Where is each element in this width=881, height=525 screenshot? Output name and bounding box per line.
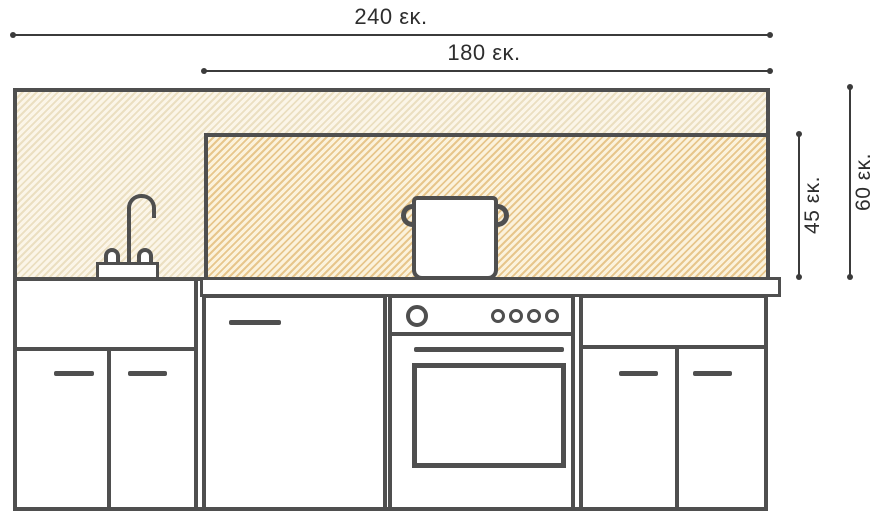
- dim-endpoint-icon: [767, 68, 773, 74]
- dim-label-inner-height: 45 εκ.: [800, 160, 826, 250]
- dim-endpoint-icon: [847, 84, 853, 90]
- door-handle-icon: [229, 320, 281, 325]
- cabinet-divider: [583, 345, 764, 349]
- door-handle-icon: [693, 371, 732, 376]
- kitchen-dimension-diagram: 240 εκ. 180 εκ. 45 εκ. 60 εκ.: [0, 0, 881, 525]
- door-handle-icon: [54, 371, 94, 376]
- cabinet-door-divider: [675, 345, 679, 507]
- faucet-handle-icon: [137, 248, 153, 263]
- dim-label-total-height: 60 εκ.: [851, 137, 877, 227]
- oven-knob-icon: [509, 309, 523, 323]
- dim-endpoint-icon: [847, 274, 853, 280]
- floor-baseline: [13, 507, 768, 511]
- faucet-spout-icon: [127, 194, 156, 218]
- door-handle-icon: [619, 371, 658, 376]
- dim-endpoint-icon: [796, 131, 802, 137]
- door-handle-icon: [128, 371, 167, 376]
- dim-label-inner-width: 180 εκ.: [404, 40, 564, 66]
- dim-endpoint-icon: [796, 274, 802, 280]
- oven-handle-icon: [414, 347, 564, 352]
- cooking-pot-icon: [412, 196, 498, 280]
- oven-knob-icon: [527, 309, 541, 323]
- sink-base-cabinet: [13, 277, 198, 511]
- cabinet-door-divider: [107, 347, 111, 507]
- dim-line-inner-width: [204, 70, 770, 72]
- dim-endpoint-icon: [201, 68, 207, 74]
- right-base-cabinet: [579, 294, 768, 511]
- dishwasher-door: [202, 294, 387, 511]
- dim-label-total-width: 240 εκ.: [311, 4, 471, 30]
- oven: [388, 294, 575, 511]
- dim-endpoint-icon: [767, 32, 773, 38]
- oven-panel-divider: [392, 332, 571, 336]
- oven-knob-icon: [491, 309, 505, 323]
- faucet-handle-icon: [104, 248, 120, 263]
- oven-window: [412, 363, 566, 468]
- oven-dial-icon: [406, 305, 428, 327]
- oven-knob-icon: [545, 309, 559, 323]
- cabinet-divider: [17, 347, 194, 351]
- dim-line-total-width: [13, 34, 770, 36]
- dim-endpoint-icon: [10, 32, 16, 38]
